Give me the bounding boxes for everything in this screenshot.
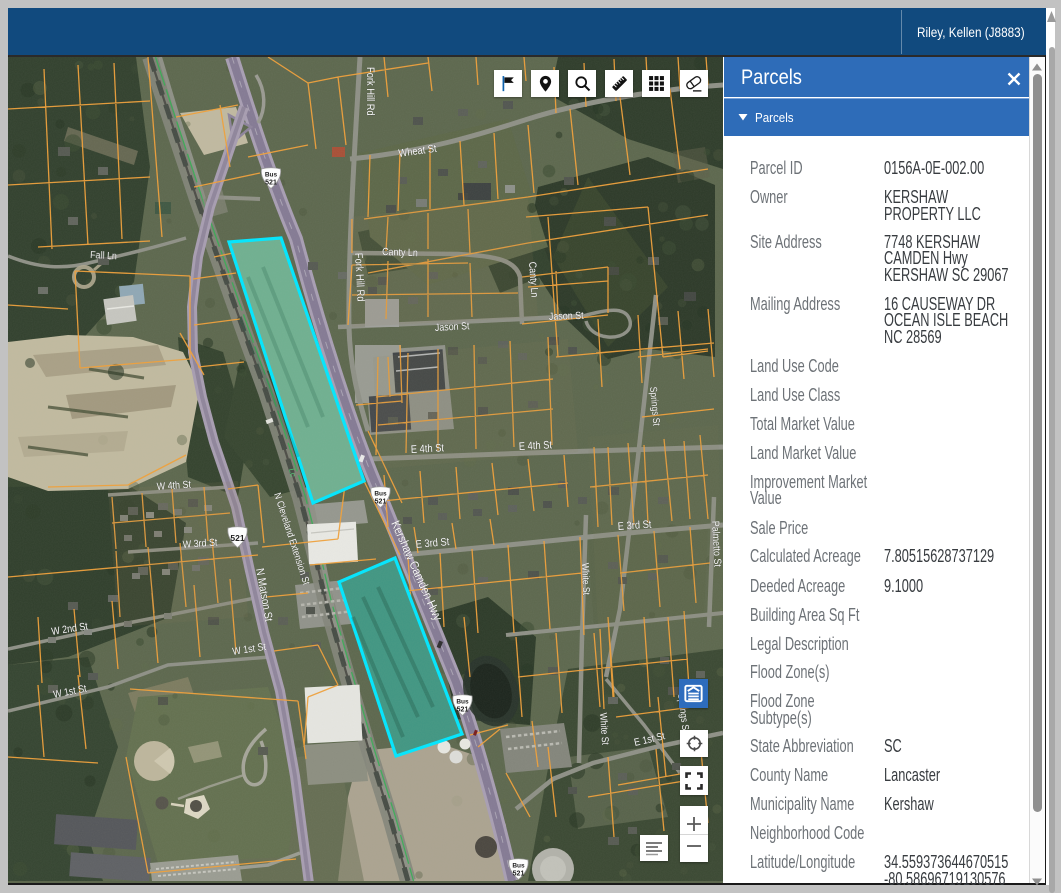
svg-text:521: 521 xyxy=(513,870,525,877)
svg-text:W 3rd St: W 3rd St xyxy=(182,536,218,550)
svg-text:Bus: Bus xyxy=(456,698,469,705)
svg-text:W 4th St: W 4th St xyxy=(156,478,191,492)
svg-text:Jason St: Jason St xyxy=(435,320,471,334)
svg-text:Bus: Bus xyxy=(512,862,525,869)
svg-text:Bus: Bus xyxy=(374,490,387,497)
svg-text:Palmetto St: Palmetto St xyxy=(709,520,723,567)
svg-text:Fall Ln: Fall Ln xyxy=(90,249,117,262)
svg-text:E 3rd St: E 3rd St xyxy=(617,519,652,533)
svg-text:White St: White St xyxy=(598,712,611,745)
svg-text:521: 521 xyxy=(265,179,277,186)
svg-text:Jason St: Jason St xyxy=(549,310,584,323)
svg-text:521: 521 xyxy=(457,706,469,713)
svg-text:Bus: Bus xyxy=(265,171,278,178)
svg-text:Fork Hill Rd: Fork Hill Rd xyxy=(364,67,376,116)
svg-text:Canty Ln: Canty Ln xyxy=(382,246,418,259)
svg-text:521: 521 xyxy=(230,533,244,543)
svg-text:521: 521 xyxy=(375,498,387,505)
svg-text:E 4th St: E 4th St xyxy=(411,442,445,456)
svg-text:Canty Ln: Canty Ln xyxy=(526,261,540,297)
svg-text:White St: White St xyxy=(580,562,592,595)
svg-text:E 4th St: E 4th St xyxy=(519,439,553,453)
